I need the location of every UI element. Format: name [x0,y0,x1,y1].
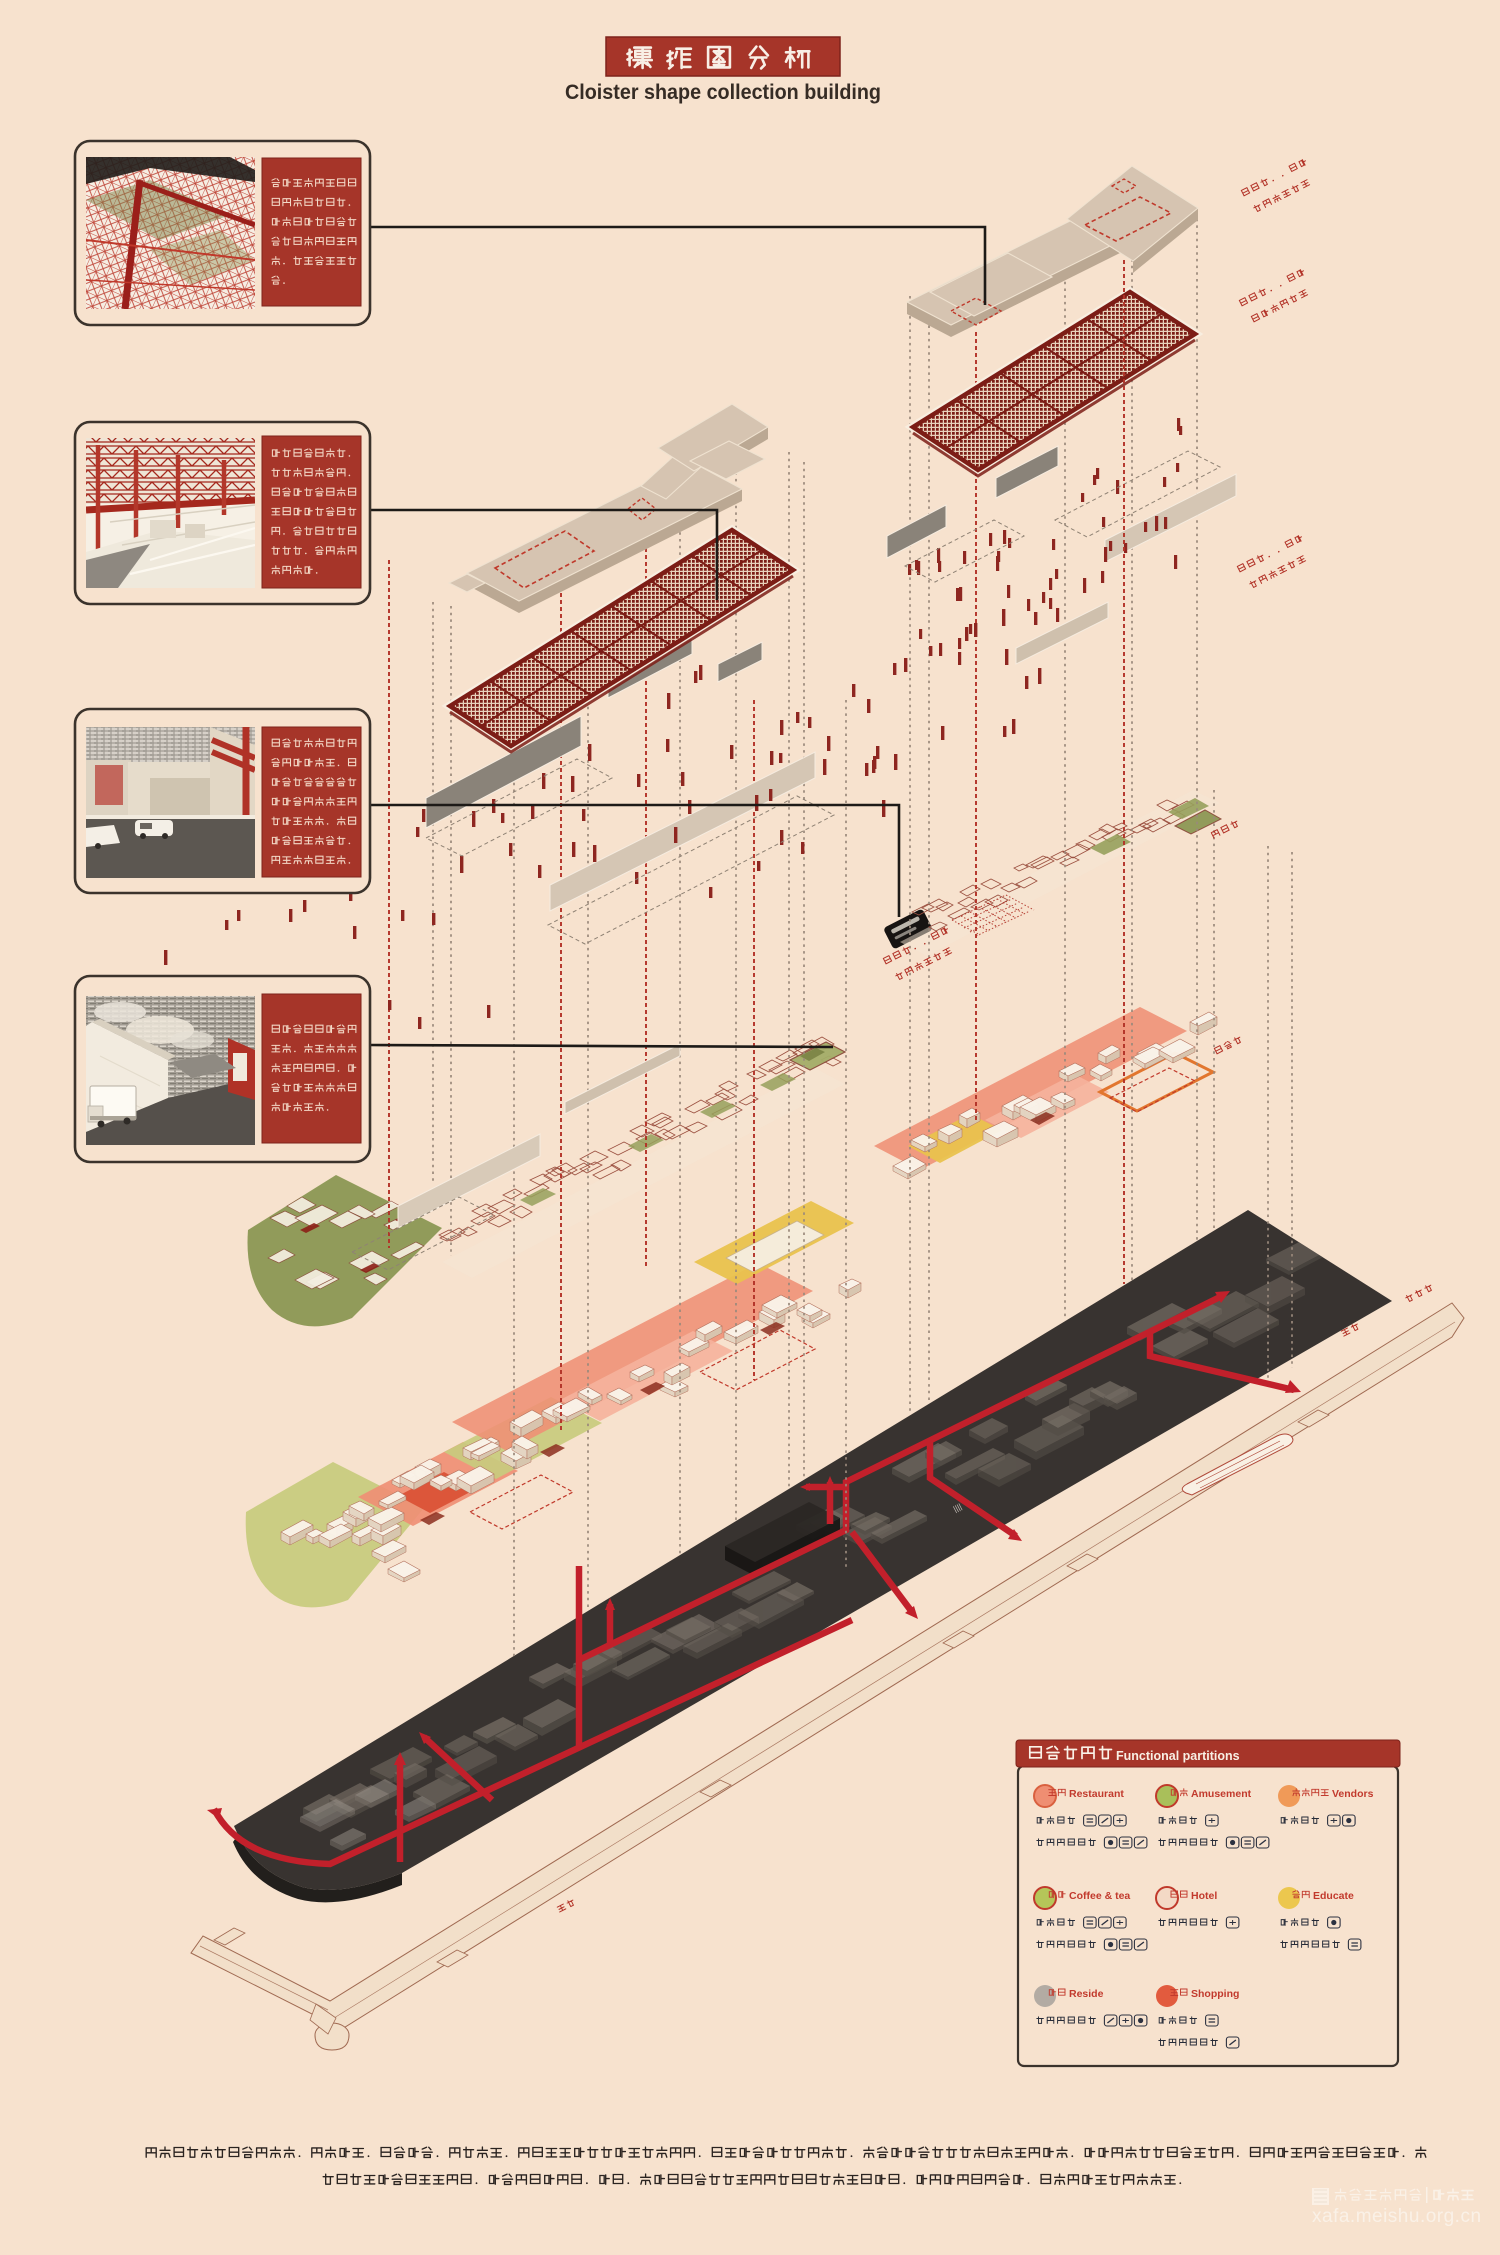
svg-text:Amusement: Amusement [1191,1788,1252,1800]
svg-text:Cloister shape collection buil: Cloister shape collection building [565,81,881,104]
svg-text:Coffee & tea: Coffee & tea [1069,1890,1130,1902]
svg-text:Shopping: Shopping [1191,1988,1239,2000]
svg-text:Educate: Educate [1313,1890,1354,1902]
svg-text:Functional partitions: Functional partitions [1116,1749,1240,1763]
svg-text:Vendors: Vendors [1332,1788,1374,1800]
svg-text:Reside: Reside [1069,1988,1104,2000]
svg-text:Hotel: Hotel [1191,1890,1217,1902]
svg-text:xafa.meishu.org.cn: xafa.meishu.org.cn [1312,2206,1482,2227]
svg-text:Restaurant: Restaurant [1069,1788,1124,1800]
